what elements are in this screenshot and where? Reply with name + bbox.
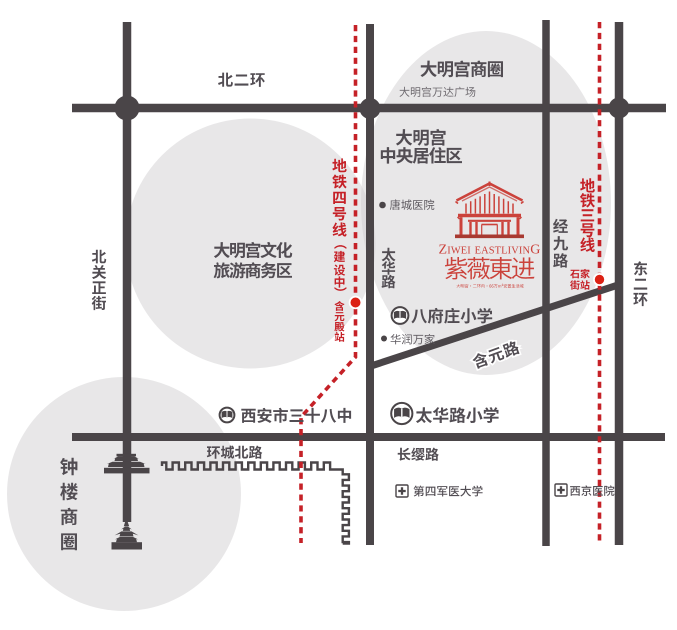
svg-text:ZIWEI EASTLIVING: ZIWEI EASTLIVING bbox=[439, 243, 541, 258]
